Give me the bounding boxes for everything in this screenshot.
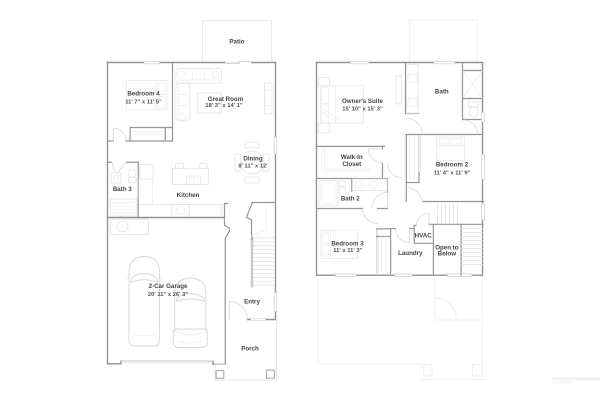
svg-text:Walk-In: Walk-In bbox=[341, 154, 363, 161]
svg-text:11' 4" x 11' 9": 11' 4" x 11' 9" bbox=[434, 171, 471, 177]
svg-text:Owner's Suite: Owner's Suite bbox=[342, 98, 384, 105]
svg-text:Below: Below bbox=[438, 251, 456, 258]
svg-text:Patio: Patio bbox=[229, 39, 244, 46]
svg-text:Great Room: Great Room bbox=[208, 96, 244, 103]
svg-text:Dining: Dining bbox=[243, 156, 262, 163]
svg-text:15' 10" x 15' 3": 15' 10" x 15' 3" bbox=[342, 106, 383, 112]
svg-text:18' 3" x 14' 1": 18' 3" x 14' 1" bbox=[205, 103, 243, 109]
svg-text:Bedroom 2: Bedroom 2 bbox=[436, 162, 469, 169]
svg-text:Bath 2: Bath 2 bbox=[341, 196, 360, 203]
svg-text:Kitchen: Kitchen bbox=[177, 192, 200, 199]
svg-text:11' x 11' 3": 11' x 11' 3" bbox=[333, 248, 362, 254]
svg-text:20' 11" x 26' 3": 20' 11" x 26' 3" bbox=[148, 292, 188, 298]
svg-text:Closet: Closet bbox=[342, 161, 361, 168]
svg-text:Laundry: Laundry bbox=[398, 250, 423, 257]
svg-text:2-Car Garage: 2-Car Garage bbox=[149, 283, 188, 290]
svg-text:8' 11" x 12': 8' 11" x 12' bbox=[238, 163, 268, 169]
svg-text:Porch: Porch bbox=[241, 346, 259, 353]
svg-text:Bath 3: Bath 3 bbox=[113, 186, 132, 193]
svg-text:HVAC: HVAC bbox=[415, 233, 433, 240]
svg-text:Bath: Bath bbox=[435, 89, 449, 96]
svg-text:11' 7" x 11' 5": 11' 7" x 11' 5" bbox=[125, 100, 162, 106]
svg-text:Bedroom 4: Bedroom 4 bbox=[127, 91, 160, 98]
svg-text:Bedroom 3: Bedroom 3 bbox=[331, 241, 364, 248]
svg-text:Entry: Entry bbox=[244, 299, 260, 306]
